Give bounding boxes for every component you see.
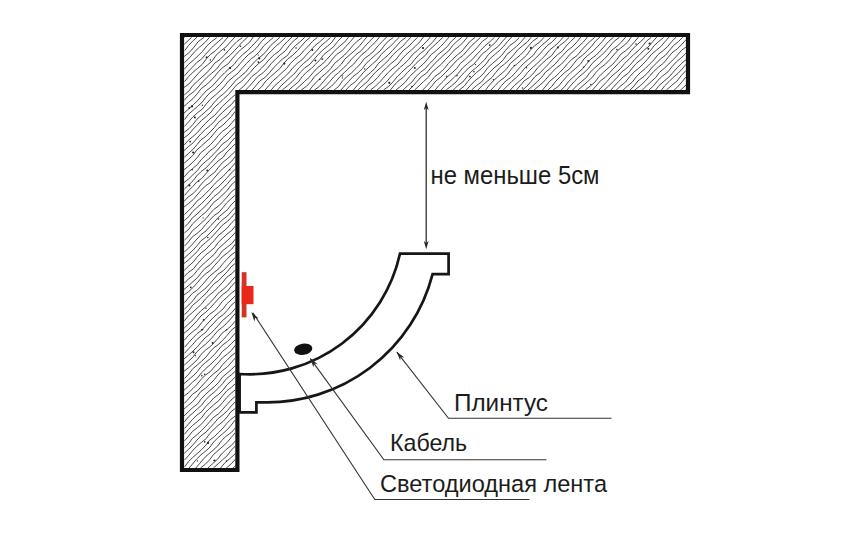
svg-text:Светодиодная лента: Светодиодная лента (380, 470, 607, 497)
svg-text:Плинтус: Плинтус (454, 390, 548, 416)
svg-text:не меньше 5см: не меньше 5см (431, 160, 600, 190)
svg-text:Кабель: Кабель (390, 430, 467, 456)
